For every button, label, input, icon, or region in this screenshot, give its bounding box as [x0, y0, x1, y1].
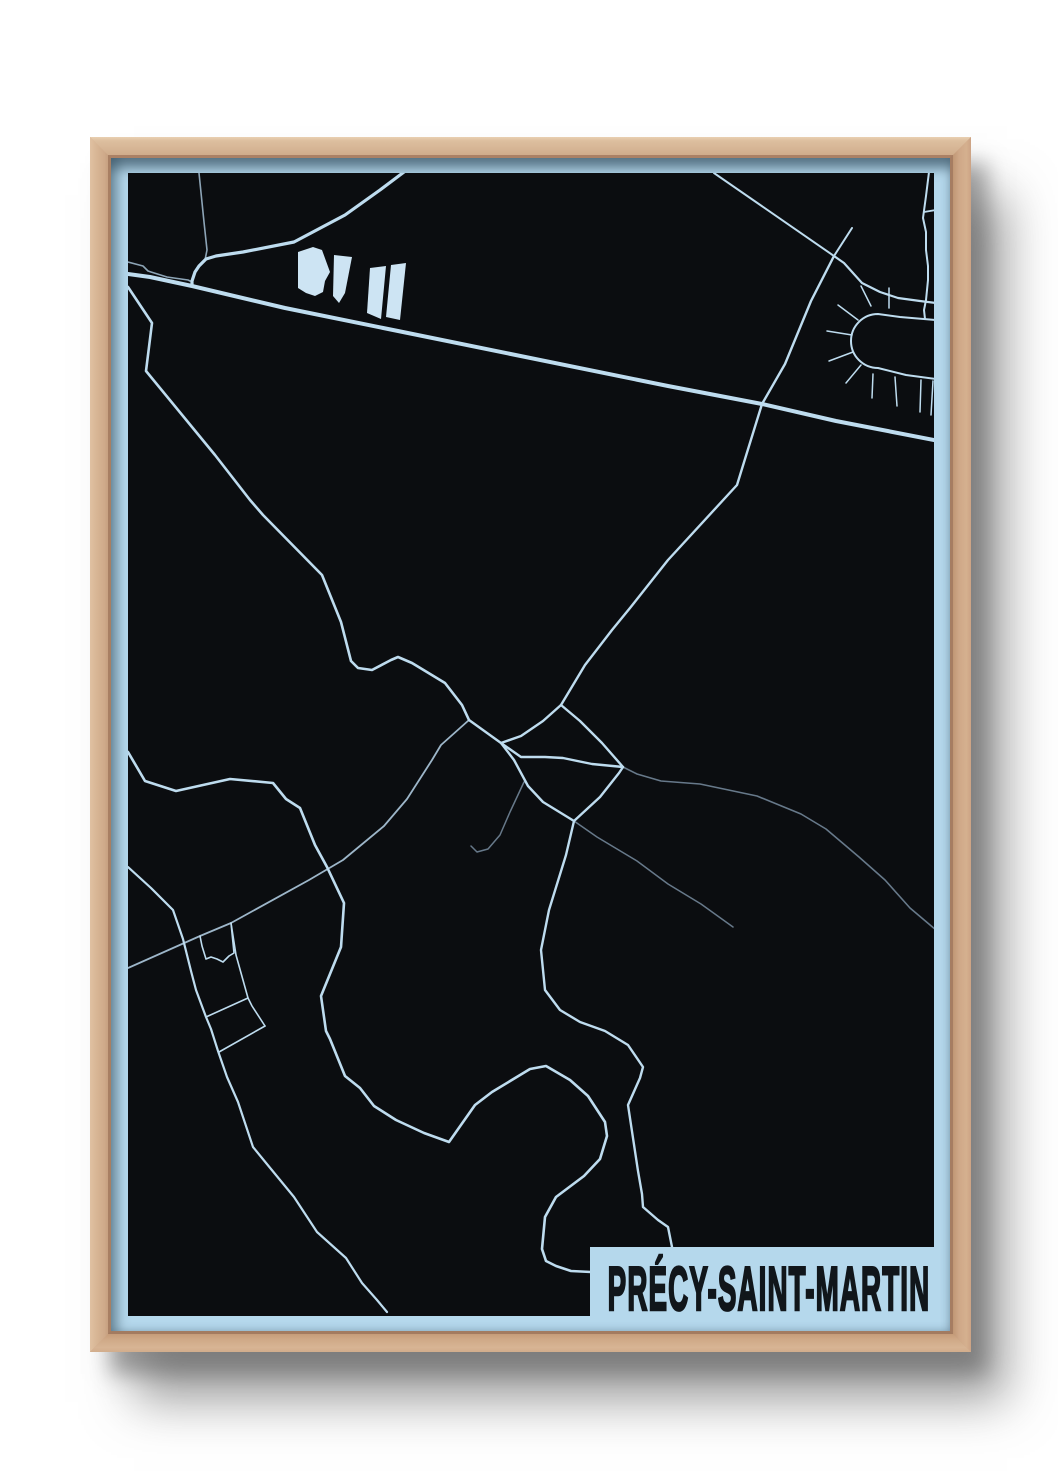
svg-text:PRÉCY-SAINT-MARTIN: PRÉCY-SAINT-MARTIN	[608, 1255, 931, 1316]
